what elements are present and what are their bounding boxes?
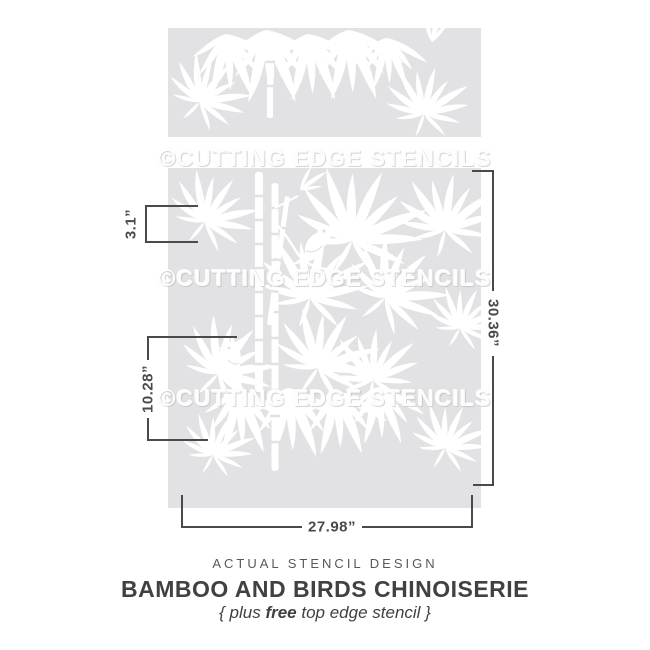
dimension-label-motif-height: 10.28” [140,365,157,413]
product-image-canvas: ©CUTTING EDGE STENCILS ©CUTTING EDGE STE… [0,0,650,650]
dimension-bracket-motif-height [148,337,237,440]
dimension-bracket-top-stencil-height [146,206,198,242]
dimension-label-top-stencil-height: 3.1” [123,209,140,239]
dimension-label-stencil-height: 30.36” [485,299,502,347]
dimension-lines [0,0,650,650]
dimension-label-stencil-width: 27.98” [308,519,356,536]
